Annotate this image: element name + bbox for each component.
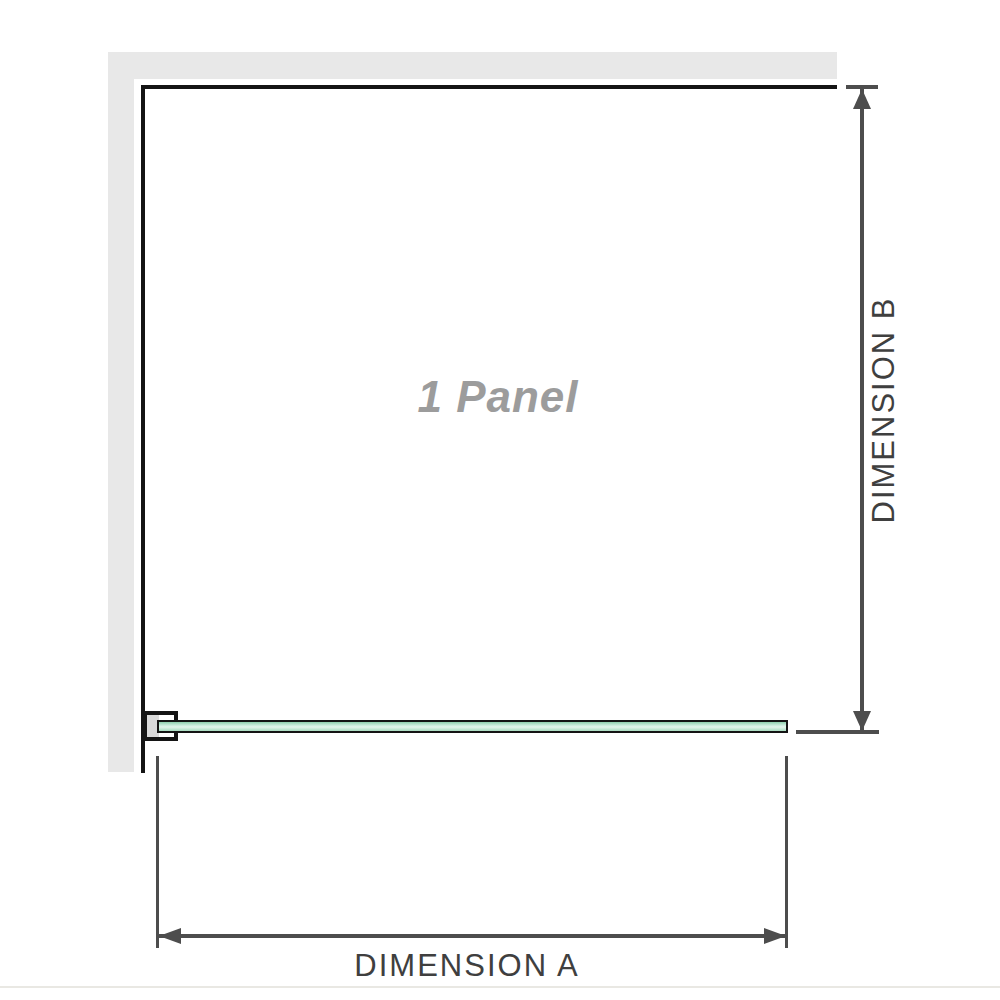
dim-a-line [159, 934, 786, 938]
dim-a-extension-right [785, 756, 788, 948]
panel-outline-left [141, 85, 145, 773]
dim-b-arrow-up-icon [853, 89, 871, 109]
dim-b-arrow-down-icon [853, 711, 871, 731]
panel-label: 1 Panel [417, 372, 578, 422]
glass-panel [157, 720, 788, 733]
dim-a-arrow-left-icon [159, 928, 181, 944]
bottom-divider [0, 986, 1000, 988]
wall-left [108, 52, 134, 772]
panel-outline-top [141, 85, 837, 89]
dim-b-label: DIMENSION B [866, 297, 902, 524]
dim-a-label: DIMENSION A [354, 948, 579, 984]
dim-a-arrow-right-icon [764, 928, 786, 944]
wall-top [108, 52, 837, 79]
dim-b-line [860, 89, 864, 731]
dim-a-extension-left [156, 756, 159, 948]
dimension-diagram: 1 Panel DIMENSION B DIMENSION A [0, 0, 1000, 1000]
